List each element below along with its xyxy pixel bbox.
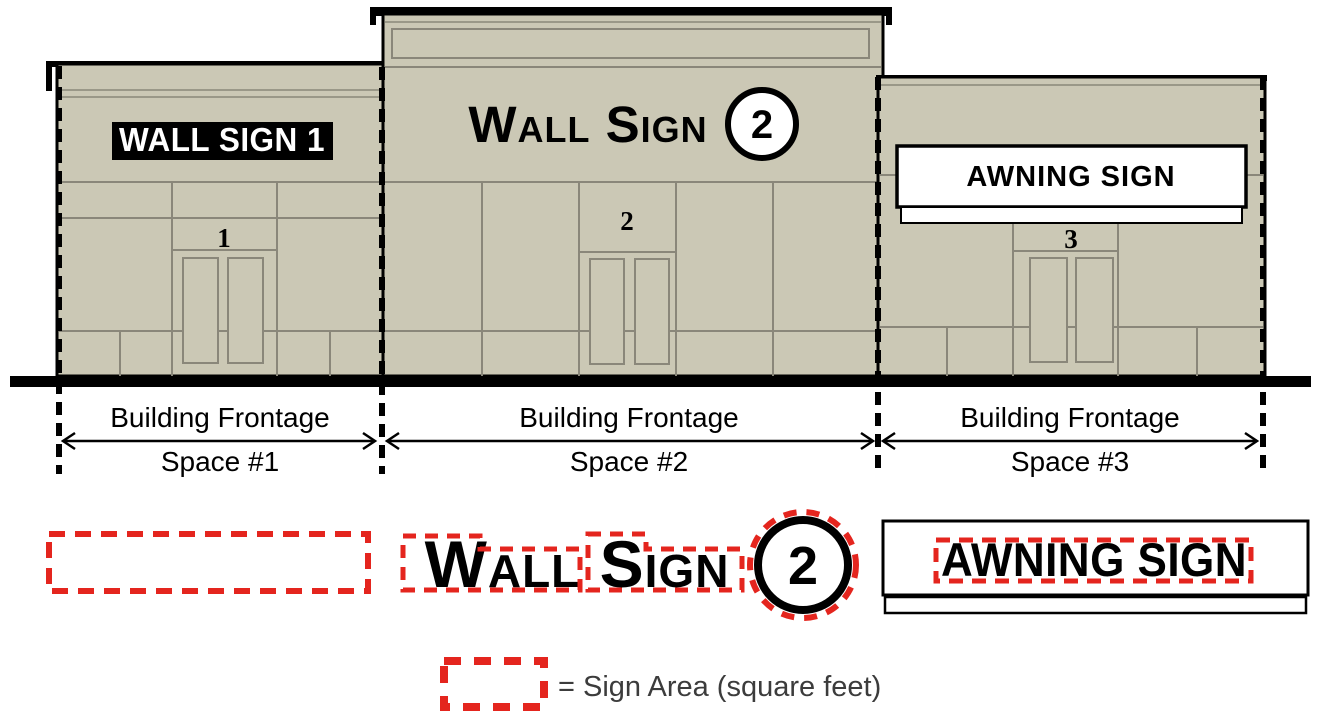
- door-leaf: [1076, 258, 1113, 362]
- door-number-2: 2: [620, 206, 634, 236]
- storefront-sign-diagram: 2 Wall Sign 2 1: [0, 0, 1321, 721]
- frontage-space-2: Building Frontage Space #2: [387, 402, 873, 477]
- wall-sign-2-example-badge: 2: [788, 536, 818, 596]
- sign-area-elevation-svg: 2 Wall Sign 2 1: [0, 0, 1321, 721]
- legend-label: = Sign Area (square feet): [558, 671, 881, 703]
- sign-area-example-wall-sign-1: WALL SIGN 1: [49, 534, 368, 591]
- awning-example-valance: [885, 597, 1306, 613]
- door-leaf: [183, 258, 218, 363]
- building-space-1: 1 WALL SIGN 1: [46, 61, 383, 376]
- wall-sign-2-label: Wall Sign: [468, 96, 707, 153]
- facade-space-2: [383, 14, 883, 376]
- ground-line: [10, 376, 1311, 387]
- sign-area-example-wall-sign-2: Wall Sign 2: [403, 512, 856, 618]
- wall-sign-1-example-label: WALL SIGN 1: [59, 535, 357, 591]
- sign-area-key-swatch: [444, 661, 544, 707]
- parapet-cap-end-right: [886, 16, 892, 25]
- facade-space-1: [57, 64, 383, 376]
- door-leaf: [1030, 258, 1067, 362]
- door-number-3: 3: [1064, 224, 1078, 254]
- space-label-3: Space #3: [1011, 446, 1129, 477]
- parapet-cap-end-left: [370, 16, 376, 25]
- legend: = Sign Area (square feet): [444, 661, 881, 707]
- door-leaf: [590, 259, 624, 364]
- frontage-label-1: Building Frontage: [110, 402, 329, 433]
- awning-sign: AWNING SIGN: [897, 146, 1246, 223]
- building-space-2: 2 Wall Sign 2: [370, 7, 892, 376]
- wall-sign-2: Wall Sign 2: [468, 90, 796, 158]
- door-number-1: 1: [217, 223, 231, 253]
- sign-area-example-awning-sign: AWNING SIGN: [883, 521, 1308, 613]
- wall-sign-2-badge: 2: [751, 103, 773, 147]
- awning-sign-label: AWNING SIGN: [966, 161, 1175, 193]
- door-leaf: [635, 259, 669, 364]
- space-label-2: Space #2: [570, 446, 688, 477]
- cornice-end-notch: [46, 67, 52, 91]
- awning-valance: [901, 207, 1242, 223]
- door-leaf: [228, 258, 263, 363]
- wall-sign-1: WALL SIGN 1: [112, 121, 333, 160]
- frontage-label-2: Building Frontage: [519, 402, 738, 433]
- space-label-1: Space #1: [161, 446, 279, 477]
- building-space-3: AWNING SIGN 3: [876, 75, 1267, 376]
- frontage-space-3: Building Frontage Space #3: [883, 402, 1257, 477]
- wall-sign-1-label: WALL SIGN 1: [119, 121, 325, 158]
- frontage-space-1: Building Frontage Space #1: [63, 402, 375, 477]
- frontage-label-3: Building Frontage: [960, 402, 1179, 433]
